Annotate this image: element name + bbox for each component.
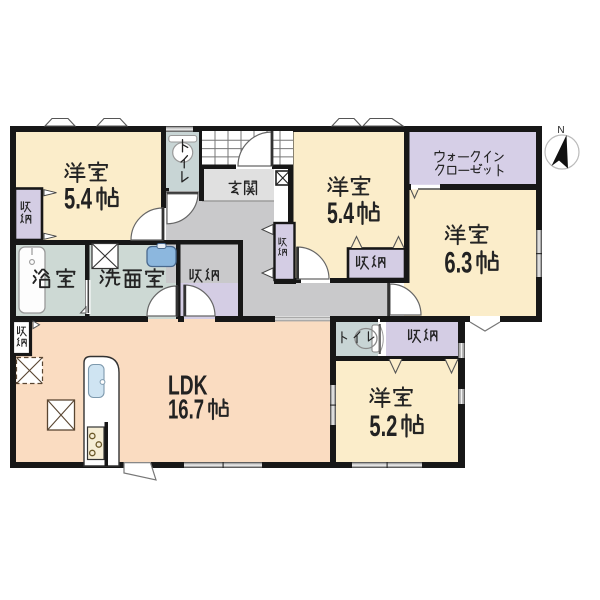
svg-text:5.4: 5.4 bbox=[64, 182, 92, 215]
svg-text:6.3: 6.3 bbox=[444, 247, 472, 280]
svg-text:N: N bbox=[557, 125, 564, 136]
svg-text:16.7: 16.7 bbox=[168, 393, 204, 424]
svg-text:5.2: 5.2 bbox=[369, 410, 397, 443]
svg-text:5.4: 5.4 bbox=[327, 197, 354, 230]
